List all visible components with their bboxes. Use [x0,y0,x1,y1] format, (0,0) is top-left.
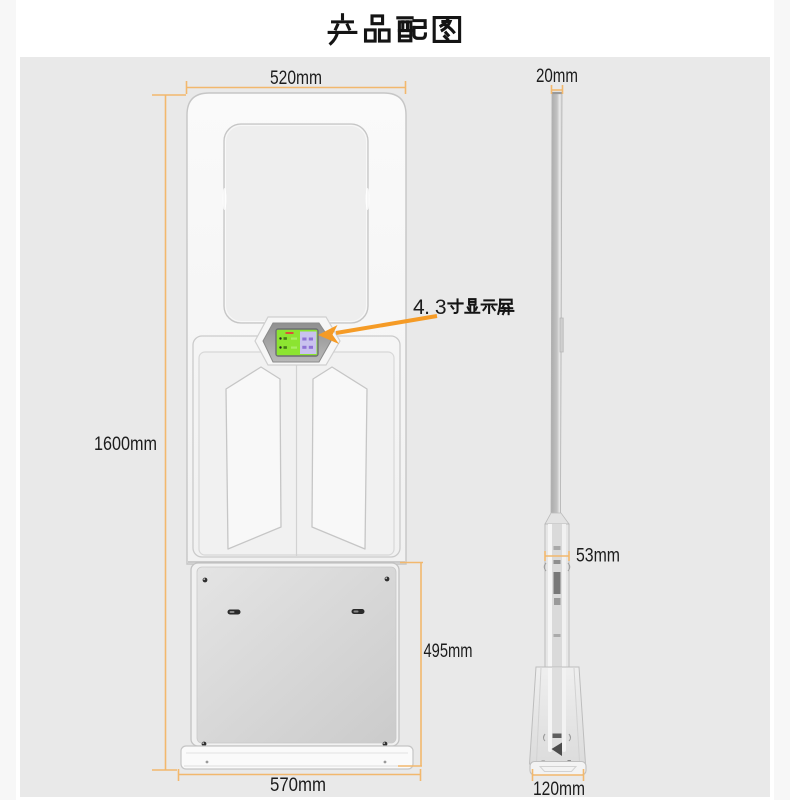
svg-text:20mm: 20mm [536,66,578,87]
svg-text:4. 3: 4. 3 [413,296,446,319]
svg-text:495mm: 495mm [424,641,473,662]
svg-text:1600mm: 1600mm [94,434,157,455]
svg-text:120mm: 120mm [533,779,585,800]
svg-text:570mm: 570mm [270,775,326,796]
svg-text:520mm: 520mm [270,68,322,89]
svg-text:53mm: 53mm [576,546,620,567]
